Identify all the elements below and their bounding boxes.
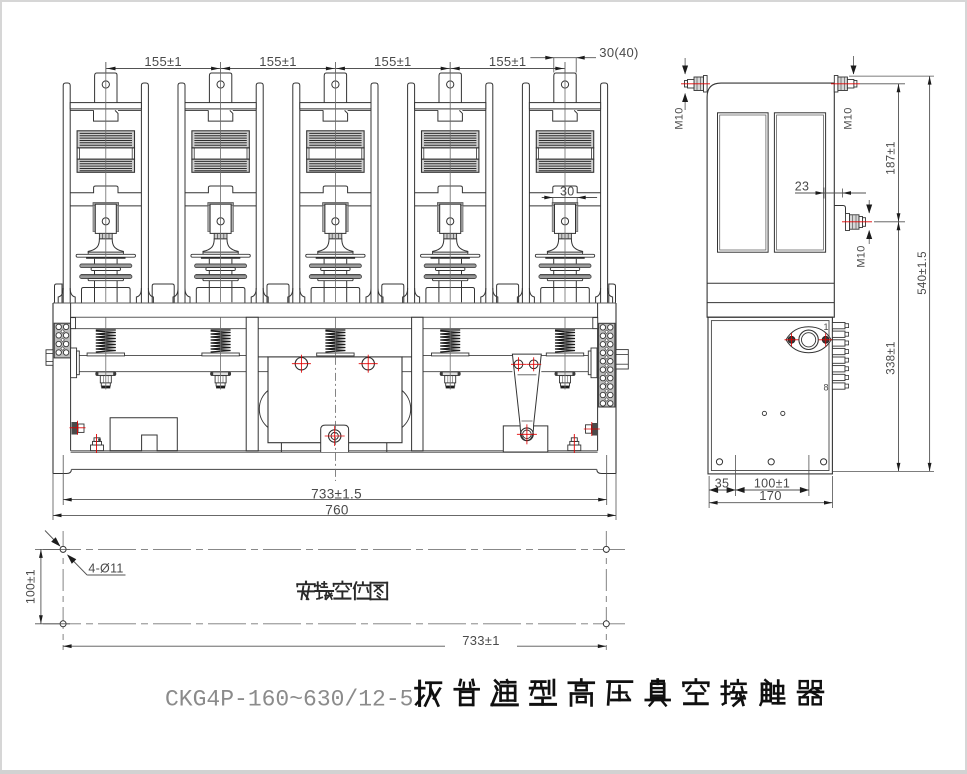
svg-text:155±1: 155±1 xyxy=(374,54,412,69)
svg-text:155±1: 155±1 xyxy=(144,54,182,69)
svg-text:35: 35 xyxy=(715,476,730,490)
svg-text:4-Ø11: 4-Ø11 xyxy=(88,562,123,576)
svg-text:155±1: 155±1 xyxy=(259,54,297,69)
svg-text:540±1.5: 540±1.5 xyxy=(917,251,929,295)
svg-text:M10: M10 xyxy=(856,245,868,267)
svg-text:8: 8 xyxy=(823,383,828,393)
svg-text:30: 30 xyxy=(560,184,575,198)
svg-text:338±1: 338±1 xyxy=(886,341,898,374)
svg-text:187±1: 187±1 xyxy=(886,141,898,174)
svg-text:760: 760 xyxy=(325,502,348,517)
svg-text:M10: M10 xyxy=(843,107,855,129)
svg-text:CKG4P-160~630/12-5: CKG4P-160~630/12-5 xyxy=(165,687,413,713)
svg-text:733±1.5: 733±1.5 xyxy=(311,487,362,502)
svg-text:100±1: 100±1 xyxy=(24,569,38,604)
svg-text:155±1: 155±1 xyxy=(489,54,527,69)
svg-text:733±1: 733±1 xyxy=(462,633,500,648)
svg-text:23: 23 xyxy=(795,180,810,194)
svg-text:170: 170 xyxy=(759,488,782,503)
svg-text:30(40): 30(40) xyxy=(599,45,638,60)
svg-text:1: 1 xyxy=(823,322,828,332)
svg-text:M10: M10 xyxy=(674,107,686,129)
